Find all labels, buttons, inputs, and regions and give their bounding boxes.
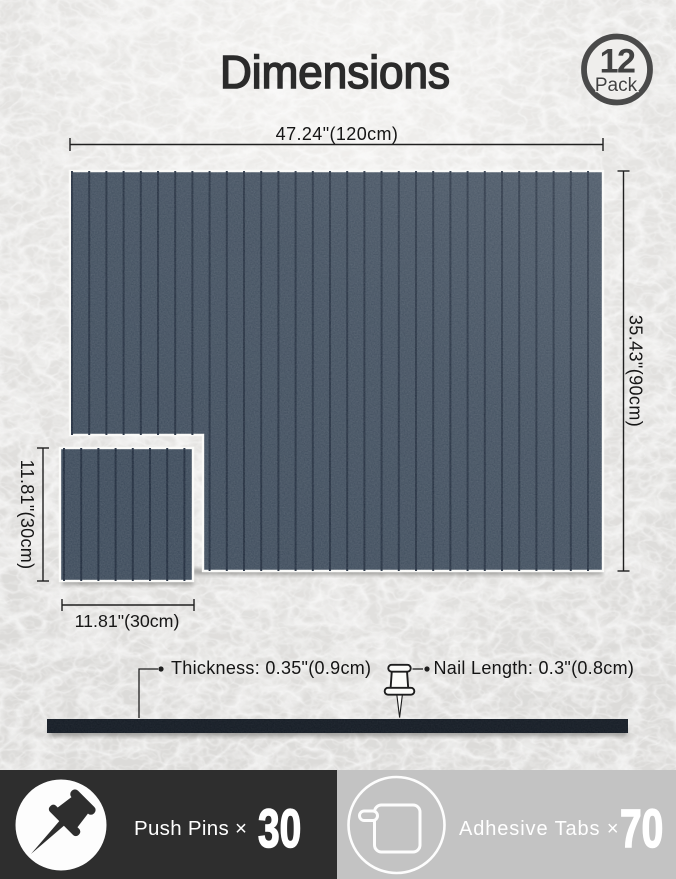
svg-text:Pack: Pack <box>595 75 638 96</box>
svg-text:11.81"(30cm): 11.81"(30cm) <box>75 611 180 631</box>
svg-text:Push Pins ×: Push Pins × <box>134 817 247 840</box>
svg-text:11.81"(30cm): 11.81"(30cm) <box>17 460 37 570</box>
svg-text:35.43"(90cm): 35.43"(90cm) <box>626 315 646 427</box>
svg-text:Dimensions: Dimensions <box>220 46 450 98</box>
svg-text:47.24"(120cm): 47.24"(120cm) <box>276 124 399 144</box>
svg-text:30: 30 <box>258 798 301 859</box>
svg-text:70: 70 <box>620 798 663 859</box>
svg-text:Adhesive Tabs ×: Adhesive Tabs × <box>459 818 619 840</box>
svg-text:Nail Length: 0.3"(0.8cm): Nail Length: 0.3"(0.8cm) <box>434 658 635 678</box>
svg-text:Thickness: 0.35"(0.9cm): Thickness: 0.35"(0.9cm) <box>171 658 371 678</box>
